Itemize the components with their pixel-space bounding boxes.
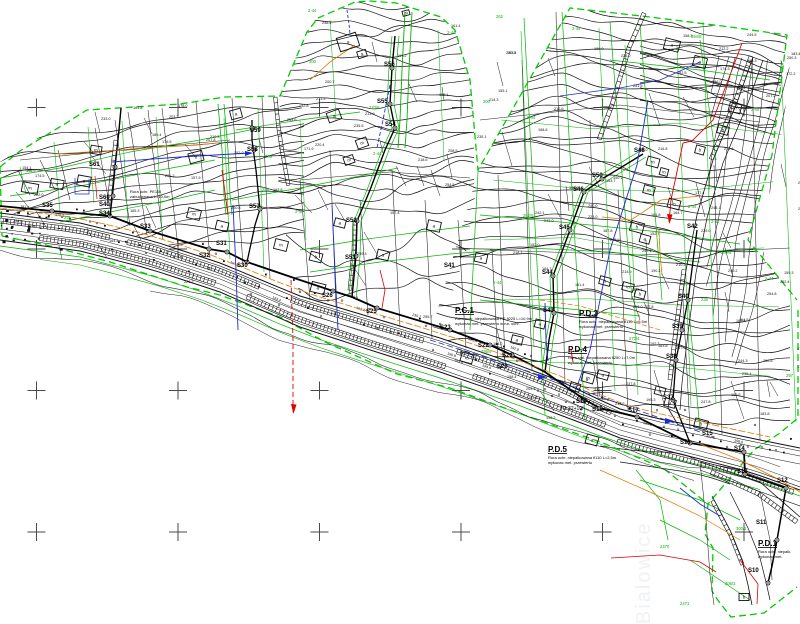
svg-text:193.2: 193.2 xyxy=(397,54,407,58)
svg-text:245.1: 245.1 xyxy=(711,206,721,210)
svg-text:247.8: 247.8 xyxy=(701,400,711,404)
svg-text:S17: S17 xyxy=(628,408,639,414)
svg-text:172.2: 172.2 xyxy=(786,72,796,76)
svg-text:233.0: 233.0 xyxy=(101,117,111,121)
svg-text:216.0: 216.0 xyxy=(633,305,643,309)
svg-text:252.4: 252.4 xyxy=(780,280,790,284)
svg-text:174.3: 174.3 xyxy=(720,67,730,71)
svg-text:S51: S51 xyxy=(345,255,356,261)
svg-text:159.1: 159.1 xyxy=(439,93,449,97)
svg-text:S35: S35 xyxy=(42,203,53,209)
svg-text:181.8: 181.8 xyxy=(651,213,661,217)
svg-text:2-44: 2-44 xyxy=(765,276,774,281)
svg-text:247.3: 247.3 xyxy=(676,346,686,350)
svg-text:218.6: 218.6 xyxy=(418,158,428,162)
svg-text:254.8: 254.8 xyxy=(767,292,777,296)
svg-text:2-44: 2-44 xyxy=(688,204,697,209)
svg-text:165.3: 165.3 xyxy=(130,209,140,213)
svg-text:171.9: 171.9 xyxy=(304,147,314,151)
svg-text:154.1: 154.1 xyxy=(22,166,32,170)
svg-text:Bialowice: Bialowice xyxy=(633,522,655,624)
svg-text:207.2: 207.2 xyxy=(766,94,776,98)
svg-text:S34: S34 xyxy=(99,211,110,217)
svg-text:250.3: 250.3 xyxy=(787,56,797,60)
svg-text:270/6: 270/6 xyxy=(369,105,380,110)
svg-text:244.5: 244.5 xyxy=(747,33,757,37)
svg-text:S13: S13 xyxy=(737,469,748,475)
svg-text:177.4: 177.4 xyxy=(695,191,705,195)
svg-text:164.7: 164.7 xyxy=(673,211,683,215)
svg-text:249.2: 249.2 xyxy=(728,269,738,273)
svg-text:288: 288 xyxy=(262,187,270,192)
svg-text:2-44: 2-44 xyxy=(527,115,536,120)
svg-text:159.4: 159.4 xyxy=(736,86,746,90)
svg-text:253.2: 253.2 xyxy=(528,396,538,400)
svg-text:178.0: 178.0 xyxy=(178,104,188,108)
svg-text:214.3: 214.3 xyxy=(489,98,499,102)
svg-text:235.1: 235.1 xyxy=(477,135,487,139)
svg-text:210.5: 210.5 xyxy=(676,263,686,267)
svg-text:235.5: 235.5 xyxy=(354,124,364,128)
svg-text:226.0: 226.0 xyxy=(621,54,631,58)
svg-text:2470: 2470 xyxy=(660,544,670,549)
svg-text:P.D.3: P.D.3 xyxy=(579,309,599,318)
svg-text:218.1: 218.1 xyxy=(513,251,523,255)
svg-text:P.D.4: P.D.4 xyxy=(568,345,588,354)
svg-text:161.4: 161.4 xyxy=(575,283,585,287)
svg-text:S16: S16 xyxy=(680,440,691,446)
svg-text:193.8: 193.8 xyxy=(273,188,283,192)
svg-text:262: 262 xyxy=(496,14,504,19)
svg-text:209.3: 209.3 xyxy=(526,387,536,391)
svg-text:210.3: 210.3 xyxy=(506,51,516,55)
svg-text:S11: S11 xyxy=(756,520,767,526)
svg-text:200: 200 xyxy=(309,59,317,64)
svg-text:242.1: 242.1 xyxy=(535,211,545,215)
svg-text:179.5: 179.5 xyxy=(162,140,172,144)
svg-text:203.2: 203.2 xyxy=(169,115,179,119)
svg-text:195.3: 195.3 xyxy=(646,398,656,402)
svg-text:S25: S25 xyxy=(366,309,377,315)
svg-text:254.5: 254.5 xyxy=(445,183,455,187)
svg-text:248.4: 248.4 xyxy=(322,21,332,25)
svg-text:S32: S32 xyxy=(199,253,210,259)
svg-text:200: 200 xyxy=(483,99,491,104)
svg-text:208.5: 208.5 xyxy=(448,149,458,153)
svg-text:229.2: 229.2 xyxy=(184,280,194,284)
svg-text:S10: S10 xyxy=(748,568,759,574)
svg-text:161.8: 161.8 xyxy=(133,106,143,110)
svg-text:189.4: 189.4 xyxy=(152,133,162,137)
svg-text:285: 285 xyxy=(265,154,273,159)
svg-text:wykonac met. przewiertu: wykonac met. przewiertu xyxy=(548,460,592,465)
svg-text:S18: S18 xyxy=(592,407,603,413)
svg-text:S56: S56 xyxy=(384,62,395,68)
svg-text:228.0: 228.0 xyxy=(588,215,598,219)
svg-text:zabudowana L=10,0m: zabudowana L=10,0m xyxy=(130,194,170,199)
svg-text:251: 251 xyxy=(64,215,72,220)
svg-text:216.8: 216.8 xyxy=(658,147,668,151)
svg-text:195.6: 195.6 xyxy=(569,186,579,190)
svg-text:220.4: 220.4 xyxy=(315,143,325,147)
svg-text:S12: S12 xyxy=(777,478,788,484)
svg-text:wykonac met. przewiertu w rur.: wykonac met. przewiertu w rur. ochr. xyxy=(455,321,520,326)
svg-text:152.7: 152.7 xyxy=(650,232,660,236)
svg-text:174.5: 174.5 xyxy=(35,174,45,178)
svg-text:212.2: 212.2 xyxy=(719,47,729,51)
svg-text:S30: S30 xyxy=(237,263,248,269)
svg-text:S58: S58 xyxy=(247,147,258,153)
svg-text:S40: S40 xyxy=(99,202,110,208)
svg-text:S45: S45 xyxy=(559,225,570,231)
svg-text:207.8: 207.8 xyxy=(644,305,654,309)
svg-text:221.2: 221.2 xyxy=(165,174,175,178)
svg-text:2-44: 2-44 xyxy=(751,107,760,112)
svg-text:TD.32+10f: TD.32+10f xyxy=(560,406,584,412)
svg-text:240.0: 240.0 xyxy=(588,204,598,208)
svg-text:S26: S26 xyxy=(322,293,333,299)
svg-text:163.8: 163.8 xyxy=(658,344,668,348)
svg-text:S14: S14 xyxy=(734,446,745,452)
svg-text:213.5: 213.5 xyxy=(316,97,326,101)
svg-text:S60: S60 xyxy=(99,195,110,201)
svg-text:S54: S54 xyxy=(385,122,396,128)
svg-text:252.0: 252.0 xyxy=(234,151,244,155)
svg-text:P.C.1: P.C.1 xyxy=(455,306,475,315)
svg-text:262/5: 262/5 xyxy=(523,213,534,218)
svg-text:158.4: 158.4 xyxy=(507,375,517,379)
svg-text:187.8: 187.8 xyxy=(603,229,613,233)
svg-text:260.8: 260.8 xyxy=(763,359,773,363)
svg-text:P.D.5: P.D.5 xyxy=(548,445,568,454)
svg-text:2471: 2471 xyxy=(680,601,690,606)
svg-text:247.1: 247.1 xyxy=(642,249,652,253)
svg-text:157.9: 157.9 xyxy=(191,176,201,180)
svg-text:239.3: 239.3 xyxy=(357,252,367,256)
svg-text:252.1: 252.1 xyxy=(633,288,643,292)
svg-text:157.4: 157.4 xyxy=(390,211,400,215)
svg-text:wykonac met. przewiertu: wykonac met. przewiertu xyxy=(579,324,623,329)
svg-text:S19: S19 xyxy=(576,399,587,405)
svg-text:155.1: 155.1 xyxy=(498,89,508,93)
svg-text:202/4: 202/4 xyxy=(721,250,732,255)
svg-text:200.8: 200.8 xyxy=(231,206,241,210)
svg-text:164.2: 164.2 xyxy=(109,239,119,243)
svg-text:183.8: 183.8 xyxy=(760,412,770,416)
svg-text:236.4: 236.4 xyxy=(742,372,752,376)
svg-text:196.2: 196.2 xyxy=(546,416,556,420)
svg-text:2-44: 2-44 xyxy=(572,26,581,31)
svg-text:2-44: 2-44 xyxy=(447,30,456,35)
svg-text:2-44: 2-44 xyxy=(373,151,382,156)
svg-text:152.8: 152.8 xyxy=(299,104,309,108)
svg-text:237.8: 237.8 xyxy=(626,382,636,386)
svg-text:190.2: 190.2 xyxy=(651,269,661,273)
svg-text:wykonac met.: wykonac met. xyxy=(758,554,782,559)
svg-text:S59: S59 xyxy=(250,128,261,134)
svg-text:S41: S41 xyxy=(444,263,455,269)
svg-text:251.5: 251.5 xyxy=(633,84,643,88)
svg-text:2-44: 2-44 xyxy=(493,280,502,285)
svg-text:168.6: 168.6 xyxy=(538,128,548,132)
svg-text:210.3: 210.3 xyxy=(210,135,220,139)
svg-text:S57: S57 xyxy=(249,204,260,210)
svg-text:2-44: 2-44 xyxy=(308,8,317,13)
svg-text:300/1: 300/1 xyxy=(736,526,747,531)
svg-text:159.3: 159.3 xyxy=(784,271,794,275)
svg-text:S38: S38 xyxy=(666,354,677,360)
svg-text:S33: S33 xyxy=(140,224,151,230)
svg-text:S40: S40 xyxy=(678,294,689,300)
svg-text:166.0: 166.0 xyxy=(712,80,722,84)
svg-text:S52: S52 xyxy=(346,218,357,224)
svg-text:184.2: 184.2 xyxy=(493,342,503,346)
svg-text:222.0: 222.0 xyxy=(34,193,44,197)
svg-text:243.0: 243.0 xyxy=(544,219,554,223)
svg-text:S39: S39 xyxy=(672,324,683,330)
svg-text:214.2: 214.2 xyxy=(615,402,625,406)
svg-text:182.5: 182.5 xyxy=(677,71,687,75)
svg-text:S15: S15 xyxy=(702,431,713,437)
svg-text:199.3: 199.3 xyxy=(747,59,757,63)
svg-text:254.6: 254.6 xyxy=(287,118,297,122)
svg-text:S43: S43 xyxy=(543,308,554,314)
svg-text:270/4: 270/4 xyxy=(629,336,640,341)
svg-text:2-44: 2-44 xyxy=(295,209,304,214)
svg-text:306/3: 306/3 xyxy=(725,581,736,586)
svg-text:215.9: 215.9 xyxy=(610,238,620,242)
svg-text:212.9: 212.9 xyxy=(554,107,564,111)
svg-text:S37: S37 xyxy=(663,395,674,401)
svg-text:185.0: 185.0 xyxy=(638,148,648,152)
svg-text:236: 236 xyxy=(701,297,709,302)
svg-text:169.5: 169.5 xyxy=(731,393,741,397)
svg-text:S42: S42 xyxy=(687,224,698,230)
svg-text:P.D.1: P.D.1 xyxy=(758,539,778,548)
svg-text:200.7: 200.7 xyxy=(325,80,335,84)
svg-text:190.1: 190.1 xyxy=(613,176,623,180)
svg-text:295/9: 295/9 xyxy=(481,349,492,354)
svg-text:196.0: 196.0 xyxy=(594,47,604,51)
svg-text:2-44: 2-44 xyxy=(711,219,720,224)
svg-text:194.7: 194.7 xyxy=(542,267,552,271)
svg-text:161.4: 161.4 xyxy=(451,24,461,28)
svg-text:163.8: 163.8 xyxy=(736,319,746,323)
svg-text:S31: S31 xyxy=(216,241,227,247)
svg-text:213.9: 213.9 xyxy=(365,112,375,116)
svg-text:152.0: 152.0 xyxy=(530,243,540,247)
svg-text:255.7: 255.7 xyxy=(423,315,433,319)
svg-text:214.9: 214.9 xyxy=(622,270,632,274)
svg-text:wykonac met. przewiertu: wykonac met. przewiertu xyxy=(568,360,612,365)
svg-text:183.4: 183.4 xyxy=(791,52,800,56)
svg-text:297: 297 xyxy=(786,373,794,378)
svg-text:244.3: 244.3 xyxy=(738,359,748,363)
svg-text:229.0: 229.0 xyxy=(701,229,711,233)
svg-text:294/8: 294/8 xyxy=(691,34,702,39)
svg-text:219.6: 219.6 xyxy=(724,147,734,151)
svg-text:S23: S23 xyxy=(440,325,451,331)
